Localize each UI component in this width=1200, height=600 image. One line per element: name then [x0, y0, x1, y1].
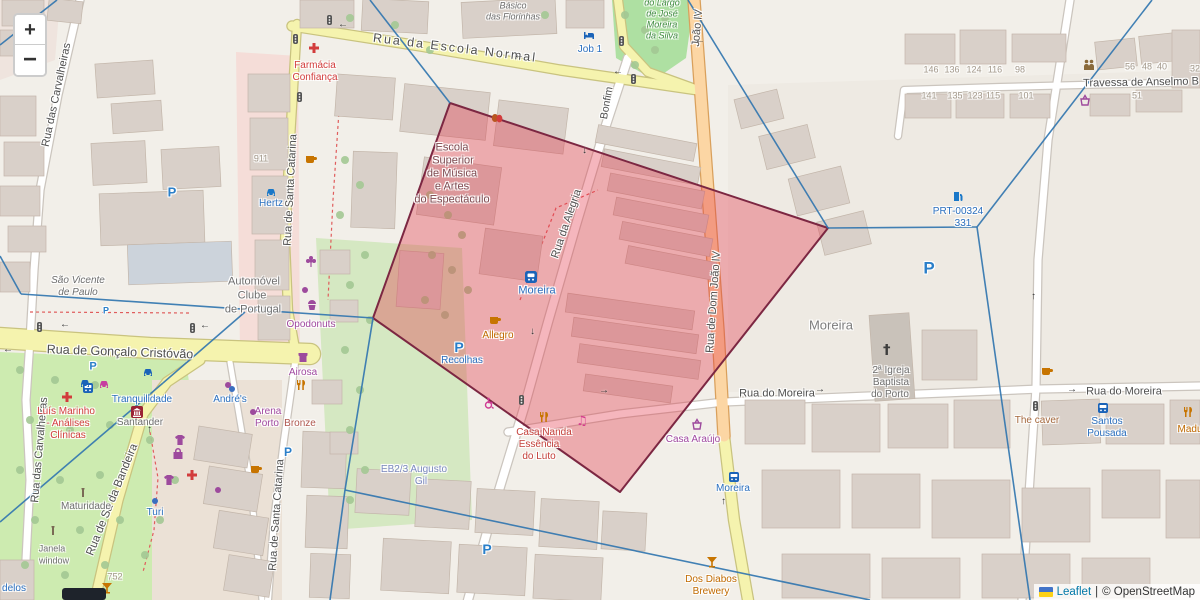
ukraine-flag-icon [1039, 587, 1053, 597]
zoom-out-button[interactable]: − [15, 45, 45, 75]
attribution-separator: | [1095, 586, 1098, 598]
attribution-bar: Leaflet | © OpenStreetMap [1034, 584, 1200, 600]
dark-marker [62, 588, 106, 600]
osm-attribution: © OpenStreetMap [1102, 586, 1195, 598]
map-tiles [0, 0, 1200, 600]
map-canvas[interactable]: Rua das CarvalheirasRua das Carvalheiras… [0, 0, 1200, 600]
leaflet-link[interactable]: Leaflet [1057, 586, 1092, 598]
zoom-in-button[interactable]: + [15, 15, 45, 45]
zoom-control: + − [13, 13, 47, 77]
